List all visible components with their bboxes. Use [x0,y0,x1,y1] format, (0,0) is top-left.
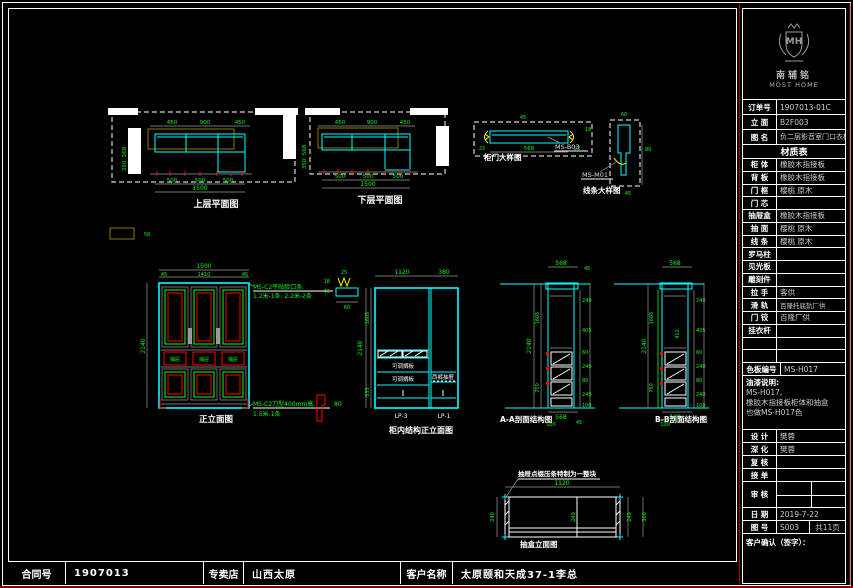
dim-label: 380 [438,269,450,276]
dim-label: 1120 [394,269,409,276]
material-label: 背 板 [743,172,777,184]
dim-label: 500 [195,178,206,184]
dim-label: 1500 [196,263,211,270]
dim-label: 500 [335,174,346,180]
dim-label: 1605 [535,312,541,325]
dim-label: 1605 [365,312,371,325]
logo-monogram: MH [786,37,803,47]
material-row: 门 芯 [743,196,845,209]
dim-label: 45 [625,191,631,197]
drawing-canvas: 450 900 450 568 350 500 500 500 1500 上层平… [0,0,853,588]
field-label: 立 面 [743,115,777,129]
brand-name-cn: 南辅铭 [776,68,812,81]
annotation: MS-C2平贴脸口条. [253,283,304,291]
color-code-label: 色板编号 [743,363,781,375]
view-title: B-B剖面结构图 [655,414,708,424]
detail-code: MS-M01 [582,171,608,179]
material-value: 百隆托底轨厂供 [777,300,845,310]
dim-label: 500 [363,174,374,180]
field-label: 订单号 [743,100,777,114]
contract-no-value: 1907013 [65,562,203,584]
color-code-row: 色板编号 MS-H017 [743,362,845,375]
material-value: 百隆厂供 [777,312,845,323]
material-label: 抽屉盒 [743,210,777,222]
dim-label: 750 [649,383,655,393]
material-value: 橡胶木指接板 [777,159,845,170]
field-drawing-name: 图 名 负二层影音室门口衣柜 [743,129,845,144]
material-label: 罗马柱 [743,248,777,260]
audit-label: 审 核 [743,482,777,507]
material-row: 抽 面樱桃 原木 [743,222,845,235]
paint-note-line: 油漆说明: [746,378,842,388]
sign-label: 接 单 [743,469,777,481]
field-label: 图 名 [743,130,777,144]
sheet-no-row: 图 号 S003 共11页 [743,520,845,533]
material-value: 橡胶木指接板 [777,210,845,221]
dim-label: 40 [324,289,330,295]
paint-note-line: MS-H017, [746,388,842,398]
dim-label: 45 [520,115,526,121]
contract-no-label: 合同号 [8,562,65,584]
detail-code: MS-B03 [555,143,580,151]
dim-label: 1500 [192,185,207,192]
dim-label: 60 [344,305,350,311]
material-value: 樱桃 原木 [777,236,845,247]
dim-label: 900 [200,120,211,126]
material-row: 雕刻件 [743,273,845,286]
annotation: 1.5米-1条 [253,410,281,418]
material-label: 门 铰 [743,312,777,324]
front-elevation: 1500 45 1410 45 2140 [140,263,333,425]
dim-label: 450 [335,120,346,126]
material-row: 挂衣杆 [743,324,845,337]
view-title: 抽盒立面图 [520,539,558,549]
material-value: 橡胶木指接板 [777,172,845,183]
dim-label: 1410 [198,272,211,278]
material-row: 柜 体橡胶木指接板 [743,158,845,171]
sign-row-design: 设 计 樊蓉 [743,429,845,442]
view-title: 正立面图 [199,414,233,425]
drawer-label: 抽屉 [228,356,238,363]
plan-view-lower: 450 900 450 568 350 500 500 500 1500 下层平… [302,108,449,206]
dim-label: 240 [582,392,592,398]
plan-view-upper: 450 900 450 568 350 500 500 500 1500 上层平… [108,108,298,239]
dim-label: 450 [235,120,246,126]
sign-row-order: 接 单 [743,468,845,481]
audit-cells [777,482,845,507]
sign-value: 樊蓉 [777,444,845,455]
cad-sheet: 450 900 450 568 350 500 500 500 1500 上层平… [0,0,853,588]
field-value: 负二层影音室门口衣柜 [777,132,845,142]
paint-note: 油漆说明: MS-H017, 橡胶木指接板柜体和抽盒 也做MS-H017色 [743,375,845,429]
sheet-no-value: S003 [777,523,809,532]
dim-label: 80 [645,147,651,153]
sign-label: 设 计 [743,430,777,442]
material-row: 拉 手客供 [743,286,845,299]
material-value: 客供 [777,287,845,298]
brand-logo: MH 南辅铭 MOST HOME [743,9,845,99]
material-row [743,337,845,350]
material-row [743,349,845,362]
dim-label: 568 [302,144,308,155]
view-title: 线条大样图 [583,185,621,195]
sign-value: 樊蓉 [777,431,845,442]
customer-confirm: 客户确认（签字）： [743,533,845,583]
sign-label: 深 化 [743,443,777,455]
customer-name-label: 客户名称 [400,562,452,584]
dim-label: 45 [576,420,582,426]
dim-label: 18 [585,127,591,133]
customer-name-value: 太原颐和天成37-1李总 [452,562,737,584]
dim-label: 1605 [649,312,655,325]
dim-label: 535 [365,387,371,397]
material-row: 见光板 [743,260,845,273]
dim-label: 450 [167,120,178,126]
section-b: 568 412 240 405 60 240 80 240 100 2140 1… [614,260,709,428]
material-label: 抽 面 [743,223,777,235]
dim-label: 500 [167,178,178,184]
view-title: 柜内结构正立面图 [388,425,453,435]
dim-label: 405 [696,328,706,334]
sheet-frame [0,3,853,588]
material-label: 雕刻件 [743,274,777,286]
dim-label: 240 [696,392,706,398]
dim-label: 25 [341,270,347,276]
paint-note-line: 橡胶木指接板柜体和抽盒 [746,398,842,408]
material-label: 挂衣杆 [743,325,777,337]
dim-label: 240 [627,512,633,522]
dim-label: 240 [490,512,496,522]
sign-row-review: 复 核 [743,455,845,468]
sign-row-deepen: 深 化 樊蓉 [743,442,845,455]
dim-label: 300 [642,512,648,522]
dim-label: 450 [400,120,411,126]
store-value: 山西太原 [243,562,400,584]
dim-label: 568 [555,414,567,421]
dim-label: 80 [334,401,342,408]
material-value: 樱桃 原木 [777,223,845,234]
dim-label: 412 [675,329,681,339]
dim-label: 2140 [140,338,147,353]
material-label: 门 框 [743,185,777,197]
dim-label: 405 [582,328,592,334]
dim-label: 240 [696,364,706,370]
view-title: A-A剖面结构图 [500,414,553,424]
unit-label: LP-1 [438,413,451,420]
dim-label: 60 [696,350,702,356]
field-value: B2F003 [777,118,845,127]
wardrobe-doors: 抽屉 抽屉 抽屉 [160,287,248,408]
dim-label: 100 [696,403,706,409]
annotation: 1.2米-1条, 2.2米-2条 [253,292,312,300]
dim-label: 500 [223,178,234,184]
dim-label: 60 [582,350,588,356]
material-label: 见光板 [743,261,777,273]
material-row: 抽屉盒橡胶木指接板 [743,209,845,222]
shelf-label: 可调搁板 [392,362,415,370]
date-value: 2019-7-22 [777,510,845,519]
dim-label: 18 [324,279,330,285]
field-elevation: 立 面 B2F003 [743,114,845,129]
drawer-label: 抽屉 [199,356,209,363]
dim-label: 350 [302,158,308,169]
store-label: 专卖店 [203,562,243,584]
dim-label: 240 [582,298,592,304]
material-row: 背 板橡胶木指接板 [743,171,845,184]
brand-name-en: MOST HOME [769,81,819,89]
dim-label: 50 [144,232,150,238]
material-value: 樱桃 原木 [777,185,845,196]
dim-label: 80 [582,378,588,384]
drawer-label: 抽屉 [170,356,180,363]
material-label: 滑 轨 [743,299,777,311]
compartment-label: 西裤抽屉 [432,373,455,381]
crest-icon: MH [772,20,816,66]
view-title: 柜门大样图 [483,152,522,162]
dim-label: 100 [582,403,592,409]
dim-label: 80 [696,378,702,384]
material-row: 门 框樱桃 原木 [743,184,845,197]
dim-label: 240 [582,364,592,370]
section-a: 568 45 240 405 60 240 80 240 100 2140 16… [500,260,595,428]
door-section-detail: 568 22 22 45 18 MS-B03 柜门大样图 [474,115,592,162]
annotation: 抽屉点缀压条特制为一整块 [518,469,597,478]
field-order-no: 订单号 1907013-01C [743,99,845,114]
shelf-label: 可调搁板 [392,375,415,383]
material-label: 柜 体 [743,159,777,171]
dim-label: 240 [571,512,577,522]
material-row: 线 条樱桃 原木 [743,235,845,248]
dim-label: 22 [479,146,485,152]
dim-label: 350 [122,160,128,171]
dim-label: 2140 [526,338,533,353]
dim-label: 1500 [360,181,375,188]
material-label [743,350,777,362]
audit-row: 审 核 [743,481,845,507]
material-label: 线 条 [743,236,777,248]
annotation: MS-C2刀型400mm高. [253,400,315,408]
view-title: 下层平面图 [357,195,402,206]
dim-label: 45 [242,272,248,278]
dim-label: 568 [524,146,535,152]
dim-label: 750 [535,383,541,393]
dim-label: 45 [161,272,167,278]
bottom-info-bar: 合同号 1907013 专卖店 山西太原 客户名称 太原颐和天成37-1李总 [8,561,737,584]
page-count: 共11页 [809,521,845,533]
material-row: 门 铰百隆厂供 [743,311,845,324]
material-label: 门 芯 [743,197,777,209]
dim-label: 1120 [554,480,569,487]
view-title: 上层平面图 [193,198,238,210]
dim-label: 500 [393,174,404,180]
unit-label: LP-3 [395,413,408,420]
color-code-value: MS-H017 [781,365,845,374]
sheet-no-label: 图 号 [743,521,777,533]
material-label: 拉 手 [743,287,777,299]
date-row: 日 期 2019-7-22 [743,507,845,520]
title-block: MH 南辅铭 MOST HOME 订单号 1907013-01C 立 面 B2F… [742,8,846,584]
material-row: 罗马柱 [743,247,845,260]
inner-structure-elevation: 1120 380 2140 1605 535 可调搁板 可调搁板 西裤抽屉 LP… [357,269,458,435]
field-value: 1907013-01C [777,103,845,112]
date-label: 日 期 [743,508,777,520]
dim-label: 568 [669,260,681,267]
dim-label: 45 [584,266,590,272]
dim-label: 2140 [641,338,648,353]
material-label [743,338,777,350]
sign-label: 复 核 [743,456,777,468]
bracket-detail: 25 18 40 60 [324,270,358,311]
dim-label: 900 [367,120,378,126]
paint-note-line: 也做MS-H017色 [746,408,842,418]
dim-label: 2140 [357,340,364,355]
dim-label: 568 [555,260,567,267]
drawer-box-detail: 抽屉点缀压条特制为一整块 1120 240 240 240 300 抽盒立面图 [490,469,648,549]
materials-table-title: 材质表 [743,144,845,158]
dim-label: 60 [621,112,627,118]
dim-label: 568 [122,146,128,157]
material-row: 滑 轨百隆托底轨厂供 [743,298,845,311]
dim-label: 240 [696,298,706,304]
